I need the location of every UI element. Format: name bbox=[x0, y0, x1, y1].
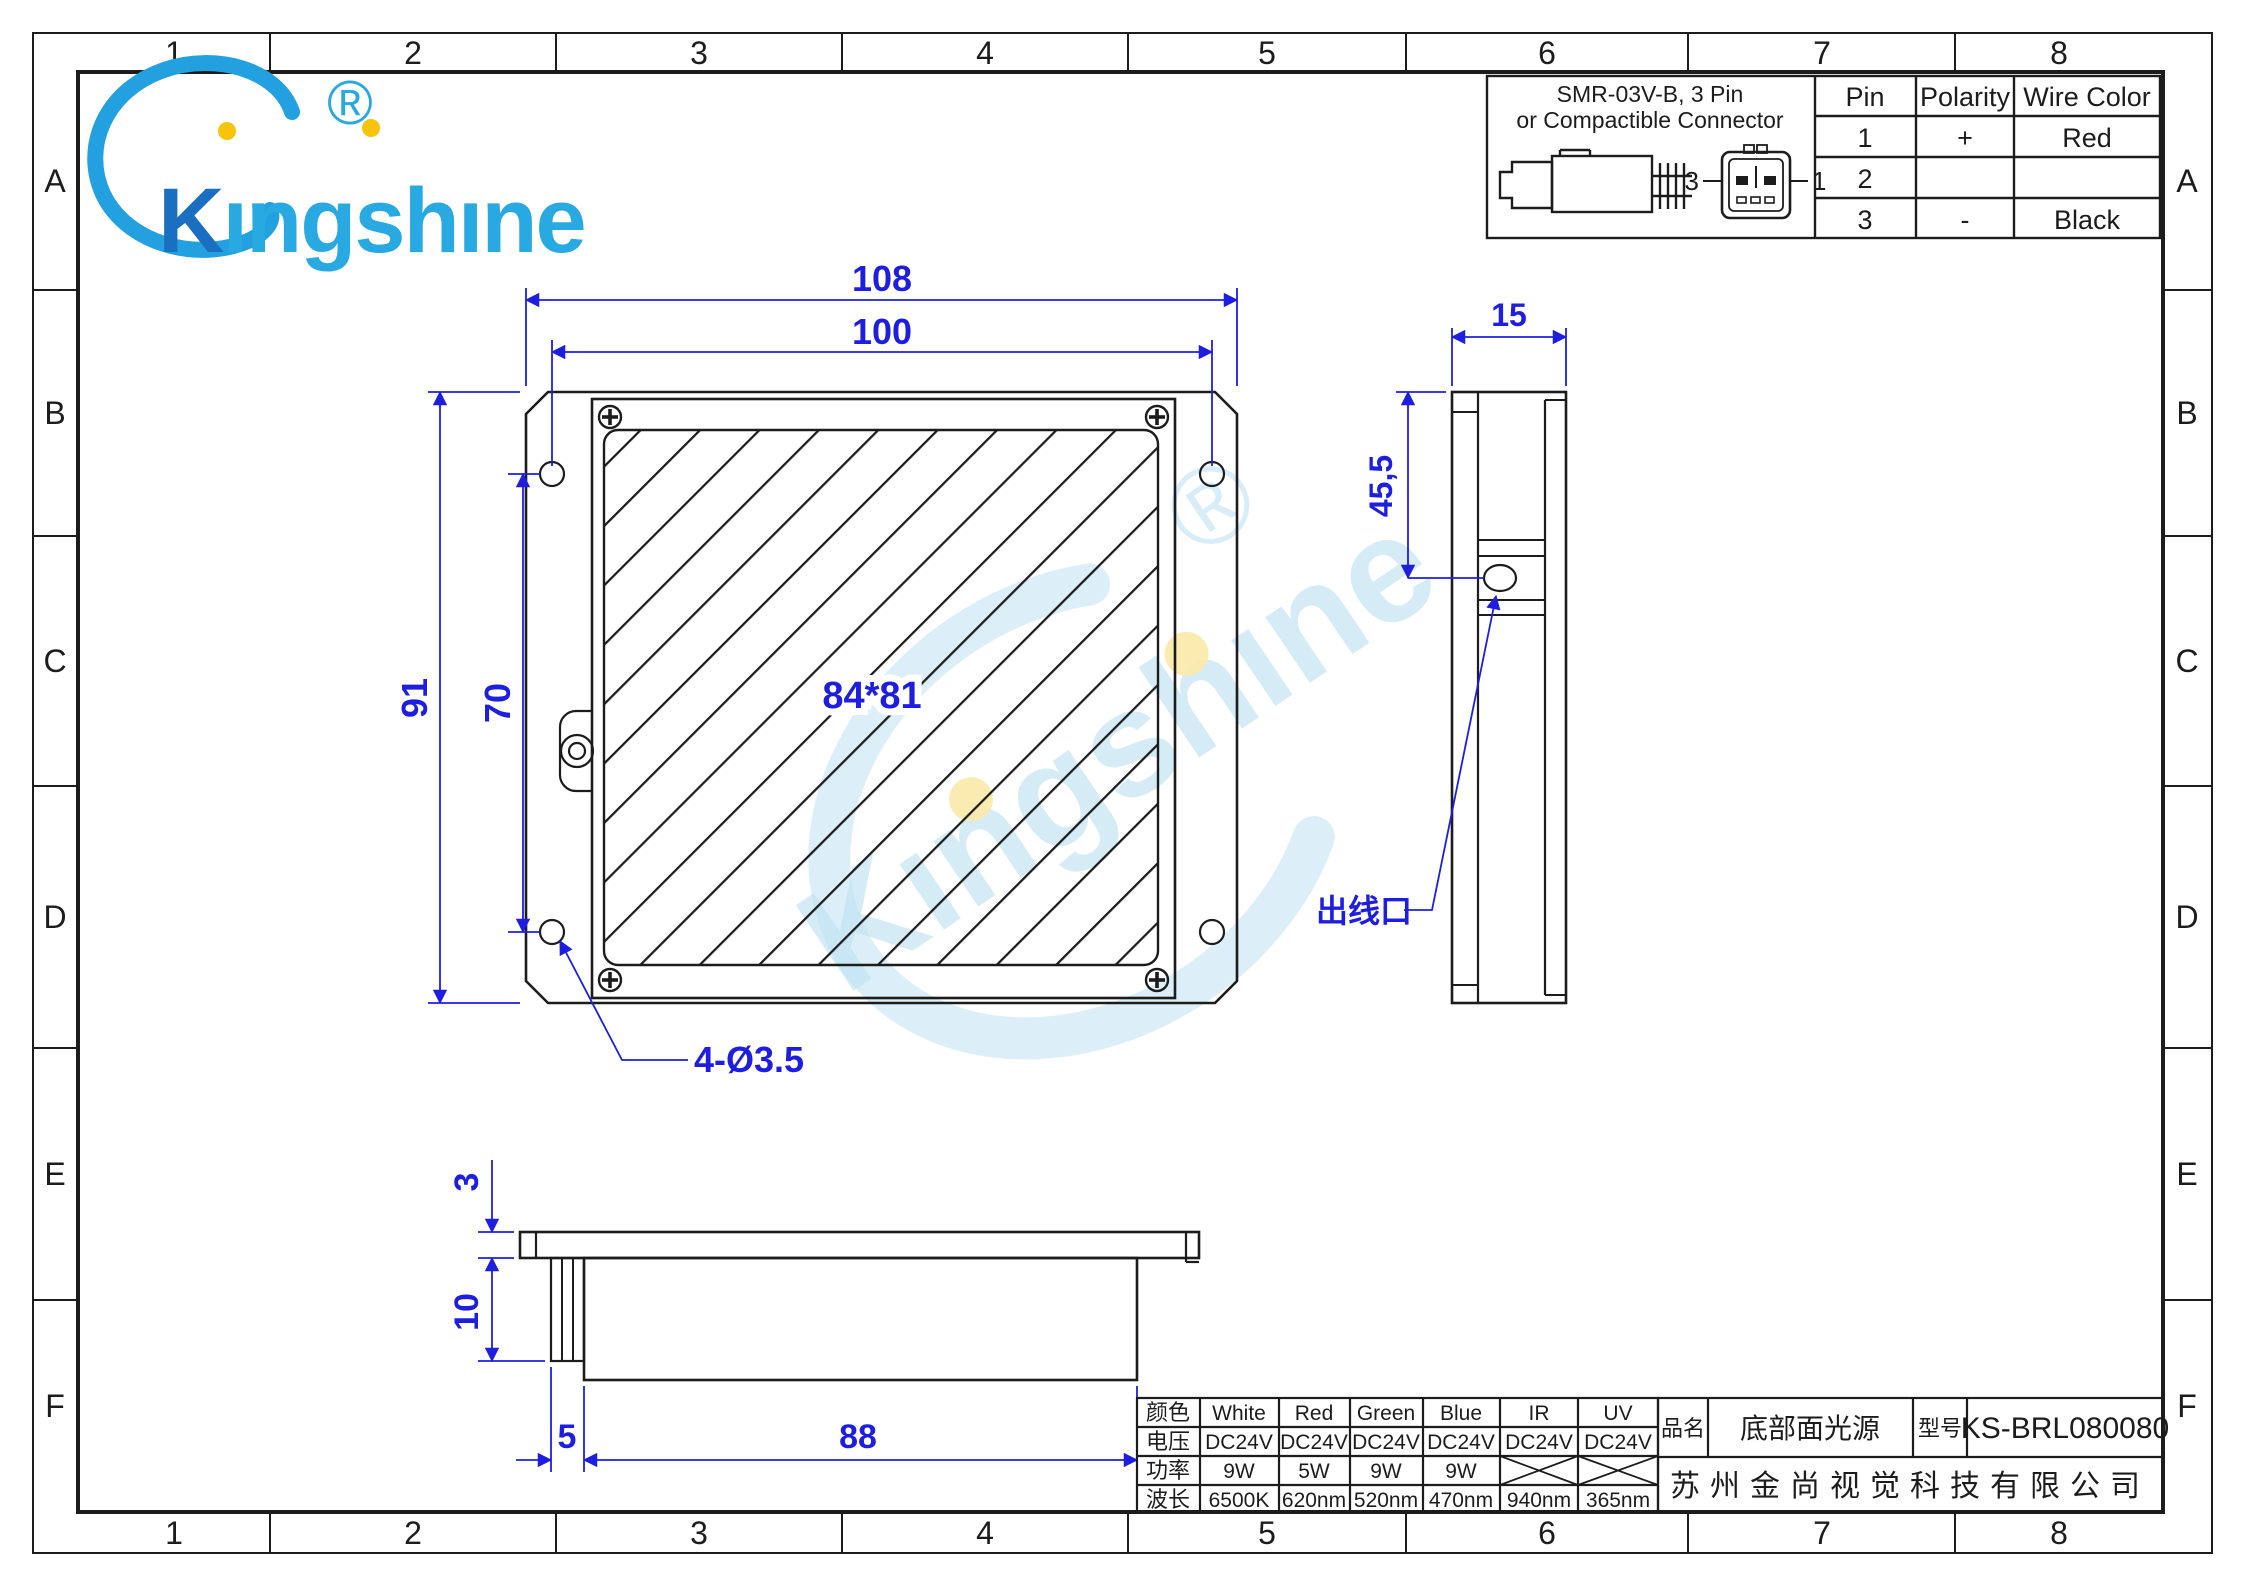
drawing-canvas: Kıngshıne ® 1 2 3 4 5 6 bbox=[0, 0, 2245, 1587]
row-label: B bbox=[44, 395, 65, 431]
spec-cell: 620nm bbox=[1282, 1489, 1346, 1512]
spec-cell: Blue bbox=[1440, 1402, 1482, 1425]
col-label: 3 bbox=[690, 1515, 708, 1551]
col-label: 4 bbox=[976, 1515, 994, 1551]
spec-cell: 5W bbox=[1298, 1460, 1330, 1483]
spec-cell: 940nm bbox=[1507, 1489, 1571, 1512]
dim-3: 3 bbox=[448, 1173, 486, 1192]
col-label: 6 bbox=[1538, 1515, 1556, 1551]
spec-cell: 520nm bbox=[1354, 1489, 1418, 1512]
socket-pin1-label: 1 bbox=[1812, 166, 1826, 196]
spec-cell: DC24V bbox=[1352, 1431, 1420, 1454]
spec-row-header: 功率 bbox=[1146, 1458, 1190, 1483]
spec-cell: White bbox=[1212, 1402, 1266, 1425]
spec-cell: Green bbox=[1357, 1402, 1415, 1425]
connector-info-box: SMR-03V-B, 3 Pin or Compactible Connecto… bbox=[1487, 76, 2160, 238]
pin-table-cell: 1 bbox=[1857, 123, 1872, 153]
bottom-body bbox=[584, 1258, 1137, 1380]
side-outline bbox=[1452, 392, 1566, 1003]
spec-cell: 6500K bbox=[1209, 1489, 1270, 1512]
spec-cell: DC24V bbox=[1427, 1431, 1495, 1454]
connector-title-line2: or Compactible Connector bbox=[1516, 107, 1784, 133]
socket-pin3-label: 3 bbox=[1685, 166, 1699, 196]
dim-70: 70 bbox=[477, 683, 518, 723]
screw-icon bbox=[599, 969, 621, 991]
ear-hole-inner bbox=[569, 743, 585, 759]
dim-88: 88 bbox=[839, 1418, 877, 1456]
product-name-label: 品名 bbox=[1661, 1416, 1705, 1441]
dim-5: 5 bbox=[558, 1418, 577, 1456]
wire-outlet-label: 出线口 bbox=[1316, 893, 1412, 929]
col-label: 8 bbox=[2050, 1515, 2068, 1551]
ear-hole-outer bbox=[561, 735, 593, 767]
row-label: F bbox=[2177, 1388, 2197, 1424]
dim-91: 91 bbox=[394, 678, 435, 718]
dim-15: 15 bbox=[1491, 297, 1527, 333]
pin-table-cell: 2 bbox=[1857, 164, 1872, 194]
row-label: B bbox=[2176, 395, 2197, 431]
bottom-flange bbox=[520, 1232, 1199, 1258]
bottom-view-dimensions bbox=[478, 1160, 1137, 1472]
row-label: F bbox=[45, 1388, 65, 1424]
bottom-view-dim-labels: 3 10 5 88 bbox=[448, 1173, 877, 1456]
col-label: 2 bbox=[404, 1515, 422, 1551]
col-label: 6 bbox=[1538, 35, 1556, 71]
spec-cell: DC24V bbox=[1280, 1431, 1348, 1454]
model-number: KS-BRL080080 bbox=[1961, 1412, 2169, 1445]
spec-cell: DC24V bbox=[1205, 1431, 1273, 1454]
row-label: E bbox=[44, 1156, 65, 1192]
wire-outlet-hole bbox=[1484, 565, 1516, 591]
connector-title: SMR-03V-B, 3 Pin or Compactible Connecto… bbox=[1516, 81, 1784, 133]
row-label: D bbox=[2175, 899, 2198, 935]
pin-table-cell: + bbox=[1957, 123, 1973, 153]
dim-window: 84*81 bbox=[822, 675, 921, 717]
col-label: 8 bbox=[2050, 35, 2068, 71]
dim-100: 100 bbox=[852, 311, 912, 352]
logo-registered-icon: ® bbox=[327, 69, 373, 138]
row-label: C bbox=[2175, 643, 2198, 679]
company-name: 苏州金尚视觉科技有限公司 bbox=[1670, 1470, 2150, 1503]
row-label: D bbox=[43, 899, 66, 935]
spec-cell: DC24V bbox=[1584, 1431, 1652, 1454]
row-label: A bbox=[44, 163, 66, 199]
pin-table-cell: 3 bbox=[1857, 205, 1872, 235]
spec-row-header: 颜色 bbox=[1146, 1400, 1190, 1425]
dim-holes: 4-Ø3.5 bbox=[694, 1039, 804, 1080]
pin-table-cell: Red bbox=[2062, 123, 2112, 153]
spec-row-header: 电压 bbox=[1146, 1429, 1190, 1454]
screw-icon bbox=[1146, 406, 1168, 428]
bottom-view: 3 10 5 88 bbox=[448, 1160, 1199, 1472]
mounting-hole bbox=[540, 920, 564, 944]
kingshine-logo: Kıngshıne ® bbox=[95, 63, 584, 272]
col-label: 7 bbox=[1813, 35, 1831, 71]
screw-icon bbox=[599, 406, 621, 428]
spec-cell: DC24V bbox=[1505, 1431, 1573, 1454]
col-label: 1 bbox=[165, 1515, 183, 1551]
row-label: C bbox=[43, 643, 66, 679]
dim-45-5: 45,5 bbox=[1363, 455, 1399, 517]
col-label: 7 bbox=[1813, 1515, 1831, 1551]
front-view: 108 100 91 70 84*81 4-Ø3.5 bbox=[394, 258, 1237, 1080]
spec-cell: IR bbox=[1529, 1402, 1550, 1425]
col-label: 5 bbox=[1258, 35, 1276, 71]
dim-108: 108 bbox=[852, 258, 912, 299]
pin-table-cell: - bbox=[1961, 205, 1970, 235]
screw-icon bbox=[1146, 969, 1168, 991]
logo-brand-text: Kıngshıne bbox=[158, 170, 585, 272]
pin-table-header: Pin bbox=[1845, 82, 1884, 112]
spec-table: 颜色 电压 功率 波长 White Red Green Blue IR UV D… bbox=[1137, 1398, 1658, 1512]
pin-table: Pin Polarity Wire Color 1 + Red 2 3 - Bl… bbox=[1845, 82, 2150, 235]
col-label: 4 bbox=[976, 35, 994, 71]
spec-cell: UV bbox=[1603, 1402, 1632, 1425]
spec-cell: 9W bbox=[1445, 1460, 1477, 1483]
pin-table-header: Polarity bbox=[1920, 82, 2011, 112]
pin-table-cell: Black bbox=[2054, 205, 2121, 235]
ear-tab-outline bbox=[560, 711, 592, 791]
connector-socket-icon bbox=[1703, 145, 1808, 218]
row-label: A bbox=[2176, 163, 2198, 199]
logo-dot-icon bbox=[218, 122, 236, 140]
spec-cell: 9W bbox=[1370, 1460, 1402, 1483]
mounting-hole bbox=[1200, 920, 1224, 944]
connector-title-line1: SMR-03V-B, 3 Pin bbox=[1557, 81, 1744, 107]
bottom-connector-tab bbox=[551, 1258, 584, 1361]
model-label: 型号 bbox=[1918, 1416, 1962, 1441]
drawing-sheet: Kıngshıne ® 1 2 3 4 5 6 bbox=[0, 0, 2245, 1587]
spec-cell: Red bbox=[1295, 1402, 1334, 1425]
spec-cell: 365nm bbox=[1586, 1489, 1650, 1512]
spec-cell: 9W bbox=[1223, 1460, 1255, 1483]
title-block: 品名 底部面光源 型号 KS-BRL080080 苏州金尚视觉科技有限公司 bbox=[1658, 1398, 2169, 1512]
spec-row-header: 波长 bbox=[1146, 1487, 1190, 1512]
connector-plug-icon bbox=[1500, 150, 1692, 212]
col-label: 3 bbox=[690, 35, 708, 71]
dim-10: 10 bbox=[448, 1293, 486, 1331]
col-label: 2 bbox=[404, 35, 422, 71]
row-label: E bbox=[2176, 1156, 2197, 1192]
spec-cell: 470nm bbox=[1429, 1489, 1493, 1512]
col-label: 5 bbox=[1258, 1515, 1276, 1551]
pin-table-header: Wire Color bbox=[2023, 82, 2151, 112]
product-name: 底部面光源 bbox=[1740, 1413, 1880, 1444]
